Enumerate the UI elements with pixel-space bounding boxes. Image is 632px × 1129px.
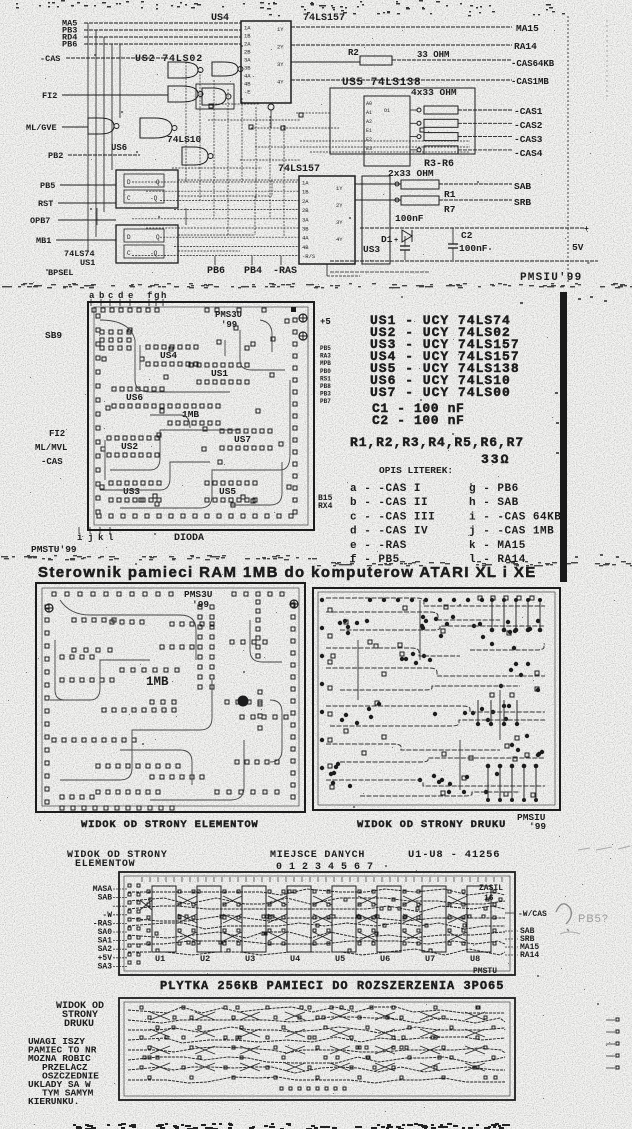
svg-text:l: l [108,533,114,543]
svg-text:a - -CAS I: a - -CAS I [350,483,421,495]
svg-text:RA14: RA14 [514,41,537,52]
svg-text:U1: U1 [155,954,165,964]
svg-text:h - SAB: h - SAB [469,497,519,509]
svg-text:1MB: 1MB [182,409,199,420]
svg-text:US5: US5 [219,486,236,497]
svg-text:3B: 3B [302,226,309,233]
svg-text:D: D [127,179,131,186]
svg-text:1Y: 1Y [336,185,343,192]
svg-text:2B: 2B [244,49,251,56]
svg-text:SAB: SAB [98,894,113,903]
svg-text:g - PB6: g - PB6 [469,483,519,495]
svg-text:g: g [154,291,159,301]
svg-text:US7: US7 [234,434,251,445]
svg-text:d - -CAS IV: d - -CAS IV [350,526,428,538]
svg-text:ML/MVL: ML/MVL [35,443,67,453]
svg-text:2B: 2B [302,207,309,214]
svg-text:-CAS: -CAS [41,457,63,467]
svg-text:A2: A2 [366,119,372,125]
svg-text:-CAS64KB: -CAS64KB [511,59,555,69]
svg-text:a: a [89,291,95,301]
svg-text:U8: U8 [470,954,480,964]
svg-text:US5 74LS138: US5 74LS138 [342,77,421,89]
svg-text:FI2: FI2 [42,91,57,101]
svg-text:US7 - UCY 74LS00: US7 - UCY 74LS00 [370,385,511,400]
svg-text:2A: 2A [302,198,309,205]
svg-text:D: D [127,234,131,241]
svg-text:2Y: 2Y [277,44,284,51]
svg-text:74LS10: 74LS10 [167,134,202,145]
svg-text:OPIS LITEREK:: OPIS LITEREK: [379,465,453,476]
svg-text:c - -CAS III: c - -CAS III [350,511,435,523]
svg-text:PB5?: PB5? [578,913,609,925]
svg-text:US4: US4 [160,350,177,361]
svg-text:-CAS2: -CAS2 [514,120,543,131]
svg-text:+: + [394,237,398,245]
svg-text:e - -RAS: e - -RAS [350,540,407,552]
svg-text:74LS157: 74LS157 [303,13,345,24]
svg-text:U1-U8 - 41256: U1-U8 - 41256 [408,849,500,861]
svg-text:33Ω: 33Ω [481,452,510,467]
svg-text:1B: 1B [244,33,251,40]
svg-text:-CAS1: -CAS1 [514,106,543,117]
svg-text:3A: 3A [244,57,251,64]
svg-text:US6: US6 [111,143,127,153]
svg-text:d: d [118,291,123,301]
svg-text:100nF: 100nF [395,213,424,224]
svg-text:PB6: PB6 [62,40,77,50]
svg-text:PB8: PB8 [320,383,331,390]
svg-text:1B: 1B [302,189,309,196]
svg-text:2Y: 2Y [336,202,343,209]
svg-text:5V: 5V [572,242,584,253]
svg-text:C2 - 100 nF: C2 - 100 nF [372,413,464,428]
svg-text:b: b [99,291,104,301]
svg-text:WIDOK OD STRONY DRUKU: WIDOK OD STRONY DRUKU [357,819,506,831]
svg-text:i: i [77,533,83,543]
svg-text:DIODA: DIODA [174,533,204,544]
svg-text:-W/CAS: -W/CAS [518,910,547,919]
svg-text:R7: R7 [444,204,456,215]
svg-text:-CAS: -CAS [40,54,60,64]
svg-text:1A: 1A [244,25,251,32]
svg-text:4x33 OHM: 4x33 OHM [411,87,457,98]
svg-text:RA3: RA3 [320,353,331,360]
svg-text:b - -CAS II: b - -CAS II [350,497,428,509]
svg-text:ELEMENTOW: ELEMENTOW [75,859,135,870]
svg-text:R1,R2,R3,R4,R5,R6,R7: R1,R2,R3,R4,R5,R6,R7 [350,435,524,450]
svg-text:PB7: PB7 [320,398,331,405]
svg-text:k: k [98,533,104,543]
svg-text:2x33 OHM: 2x33 OHM [388,168,434,179]
svg-text:PB0: PB0 [320,368,331,375]
svg-text:-CAS4: -CAS4 [514,148,543,159]
svg-text:+5: +5 [320,317,331,327]
svg-text:U2: U2 [200,954,210,964]
svg-text:h: h [161,291,166,301]
svg-text:C: C [127,250,131,257]
svg-text:Q: Q [156,179,160,186]
svg-text:ML/GVE: ML/GVE [26,123,57,133]
svg-text:US3: US3 [363,244,380,255]
svg-text:3B: 3B [244,65,251,72]
svg-text:1A: 1A [302,180,309,187]
svg-text:100nF: 100nF [459,243,488,254]
svg-text:OPB7: OPB7 [30,216,50,226]
svg-text:Q: Q [156,234,160,241]
svg-text:RX4: RX4 [318,502,333,511]
svg-text:U3: U3 [245,954,255,964]
svg-text:E2: E2 [366,137,372,143]
svg-text:U5: U5 [335,954,345,964]
svg-text:RA14: RA14 [520,951,539,960]
svg-text:j: j [88,533,93,543]
svg-text:MIEJSCE DANYCH: MIEJSCE DANYCH [270,850,365,861]
svg-text:-RAS: -RAS [273,266,297,277]
svg-text:4B: 4B [244,81,251,88]
svg-text:i - -CAS 64KB: i - -CAS 64KB [469,511,561,523]
svg-text:PMSTU'99: PMSTU'99 [31,544,77,555]
svg-text:3Y: 3Y [277,61,284,68]
svg-text:-CAS3: -CAS3 [514,134,543,145]
svg-text:1Y: 1Y [277,26,284,33]
svg-text:E1: E1 [366,128,372,134]
svg-text:c: c [108,291,113,301]
svg-text:WIDOK OD STRONY ELEMENTOW: WIDOK OD STRONY ELEMENTOW [81,819,259,831]
svg-text:j - -CAS 1MB: j - -CAS 1MB [469,526,554,538]
svg-text:PB4: PB4 [244,266,262,277]
svg-text:f: f [147,291,152,301]
svg-text:US1: US1 [211,368,228,379]
svg-text:k - MA15: k - MA15 [469,540,526,552]
svg-text:US4: US4 [211,13,229,24]
svg-text:33 OHM: 33 OHM [417,50,449,60]
svg-text:4Y: 4Y [336,236,343,243]
svg-text:-Q: -Q [150,195,158,202]
svg-text:RST: RST [38,199,53,209]
svg-text:4B: 4B [302,244,309,251]
svg-text:US1: US1 [80,258,95,268]
svg-text:PLYTKA 256KB PAMIECI DO ROZSZE: PLYTKA 256KB PAMIECI DO ROZSZERZENIA 3PO… [160,979,504,993]
svg-text:PB5: PB5 [40,181,55,191]
svg-text:2A: 2A [244,41,251,48]
svg-text:+: + [584,225,589,234]
svg-text:C2: C2 [461,230,473,241]
svg-text:US3: US3 [123,486,140,497]
svg-text:U7: U7 [425,954,435,964]
svg-text:RS1: RS1 [320,375,331,382]
svg-text:SA3: SA3 [98,962,113,971]
svg-text:U4: U4 [290,954,300,964]
svg-text:SRB: SRB [514,197,531,208]
svg-text:PB3: PB3 [320,391,331,398]
svg-text:3Y: 3Y [336,219,343,226]
svg-text:-Q: -Q [150,250,158,257]
svg-text:R2: R2 [348,48,359,58]
svg-text:MB1: MB1 [36,236,51,246]
svg-text:SAB: SAB [514,181,531,192]
svg-text:O1: O1 [384,108,390,114]
svg-text:R1: R1 [444,189,456,200]
svg-text:A1: A1 [366,110,372,116]
svg-text:-E: -E [244,89,251,96]
svg-text:3A: 3A [302,216,309,223]
svg-text:e: e [128,291,133,301]
svg-text:US2: US2 [121,441,138,452]
svg-text:BPSEL: BPSEL [48,268,74,278]
svg-text:PMSIU'99: PMSIU'99 [520,272,582,284]
svg-text:D1: D1 [381,234,393,245]
svg-text:MA15: MA15 [516,23,539,34]
svg-text:C: C [127,195,131,202]
svg-text:4A: 4A [302,235,309,242]
svg-text:PB2: PB2 [48,151,63,161]
svg-text:-CAS1MB: -CAS1MB [511,77,549,87]
svg-text:US6: US6 [126,392,143,403]
svg-text:Sterownik pamieci RAM 1MB do k: Sterownik pamieci RAM 1MB do komputerow … [38,564,537,581]
svg-text:KIERUNKU.: KIERUNKU. [28,1096,79,1107]
svg-text:'99: '99 [529,821,546,832]
svg-text:MPB: MPB [320,360,331,367]
svg-text:4A: 4A [244,73,251,80]
svg-text:PMSTU: PMSTU [473,967,497,976]
svg-text:'99: '99 [221,320,237,330]
svg-text:1MB: 1MB [146,675,169,689]
svg-text:PB6: PB6 [207,266,225,277]
svg-text:U6: U6 [380,954,390,964]
svg-text:-R/S: -R/S [302,253,316,260]
svg-text:4Y: 4Y [277,79,284,86]
svg-text:DRUKU: DRUKU [64,1019,94,1030]
svg-text:SB9: SB9 [45,330,62,341]
svg-text:A0: A0 [366,101,372,107]
svg-text:PB5: PB5 [320,345,331,352]
svg-text:-: - [586,259,591,268]
svg-text:FI2: FI2 [49,429,65,439]
